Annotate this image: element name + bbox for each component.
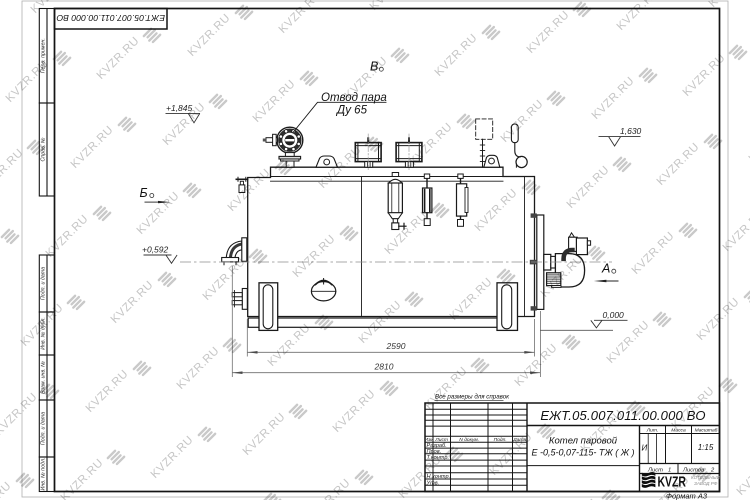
svg-text:KVZR.RU: KVZR.RU xyxy=(0,391,40,438)
svg-text:И: И xyxy=(642,444,648,453)
svg-text:KVZR.RU: KVZR.RU xyxy=(0,480,14,500)
svg-text:KVZR.RU: KVZR.RU xyxy=(423,365,470,412)
svg-text:Б: Б xyxy=(140,186,148,200)
svg-text:1:15: 1:15 xyxy=(698,443,714,452)
svg-text:KVZR.RU: KVZR.RU xyxy=(84,368,131,415)
svg-text:KVZR.RU: KVZR.RU xyxy=(186,12,233,59)
svg-text:Подп. и дата: Подп. и дата xyxy=(41,267,47,300)
svg-text:KVZR.RU: KVZR.RU xyxy=(69,124,116,171)
svg-text:2590: 2590 xyxy=(386,341,406,351)
svg-text:Масштаб: Масштаб xyxy=(695,428,718,434)
svg-text:N докум.: N докум. xyxy=(459,437,479,443)
svg-text:Инв. № подл.: Инв. № подл. xyxy=(41,458,47,491)
svg-text:Подп.: Подп. xyxy=(494,437,507,443)
svg-text:KVZR.RU: KVZR.RU xyxy=(44,213,91,260)
svg-text:KVZR.RU: KVZR.RU xyxy=(565,164,612,211)
svg-text:KVZR.RU: KVZR.RU xyxy=(109,279,156,326)
svg-text:Лит.: Лит. xyxy=(646,428,658,434)
svg-text:KVZR.RU: KVZR.RU xyxy=(681,52,728,99)
svg-text:KVZR.RU: KVZR.RU xyxy=(251,78,298,125)
svg-text:KVZR.RU: KVZR.RU xyxy=(735,451,750,498)
svg-text:KVZR.RU: KVZR.RU xyxy=(4,58,51,105)
svg-text:KVZR.RU: KVZR.RU xyxy=(655,141,702,188)
svg-text:KVZR.RU: KVZR.RU xyxy=(525,9,572,56)
svg-text:А: А xyxy=(601,262,610,276)
svg-text:KVZR.RU: KVZR.RU xyxy=(630,230,677,277)
svg-text:Утв.: Утв. xyxy=(426,480,440,486)
svg-text:KVZR.RU: KVZR.RU xyxy=(499,98,546,145)
svg-text:KVZR.RU: KVZR.RU xyxy=(175,345,222,392)
svg-text:1,630: 1,630 xyxy=(620,126,642,136)
svg-text:KVZR.RU: KVZR.RU xyxy=(95,35,142,82)
svg-text:KVZR.RU: KVZR.RU xyxy=(615,0,662,33)
svg-text:KVZR.RU: KVZR.RU xyxy=(721,207,750,254)
svg-text:ЗАВОД РФ: ЗАВОД РФ xyxy=(694,481,718,486)
svg-text:ЕЖТ.05.007.011.00.000 ВО: ЕЖТ.05.007.011.00.000 ВО xyxy=(56,13,165,23)
svg-text:KVZR.RU: KVZR.RU xyxy=(149,434,196,481)
svg-text:KVZR.RU: KVZR.RU xyxy=(277,0,324,36)
svg-text:+0,592: +0,592 xyxy=(142,245,169,255)
svg-text:Лист: Лист xyxy=(434,437,448,443)
svg-text:KVZR.RU: KVZR.RU xyxy=(605,319,652,366)
svg-text:Подп. и дата: Подп. и дата xyxy=(41,412,47,445)
svg-text:0,000: 0,000 xyxy=(603,310,625,320)
svg-text:KVZR.RU: KVZR.RU xyxy=(59,457,106,500)
svg-text:KVZR.RU: KVZR.RU xyxy=(241,411,288,458)
svg-text:KVZR.RU: KVZR.RU xyxy=(433,32,480,79)
svg-text:KVZR.RU: KVZR.RU xyxy=(695,296,742,343)
svg-text:2810: 2810 xyxy=(374,362,394,372)
svg-text:2: 2 xyxy=(710,468,715,474)
svg-text:KVZR.RU: KVZR.RU xyxy=(331,388,378,435)
svg-text:Ду 65: Ду 65 xyxy=(335,105,368,117)
svg-text:KVZR.RU: KVZR.RU xyxy=(306,477,353,500)
svg-text:KVZR.RU: KVZR.RU xyxy=(368,0,415,13)
svg-text:KVZR.RU: KVZR.RU xyxy=(590,75,637,122)
svg-text:KVZR.RU: KVZR.RU xyxy=(513,342,560,389)
svg-text:Изм: Изм xyxy=(424,437,434,443)
